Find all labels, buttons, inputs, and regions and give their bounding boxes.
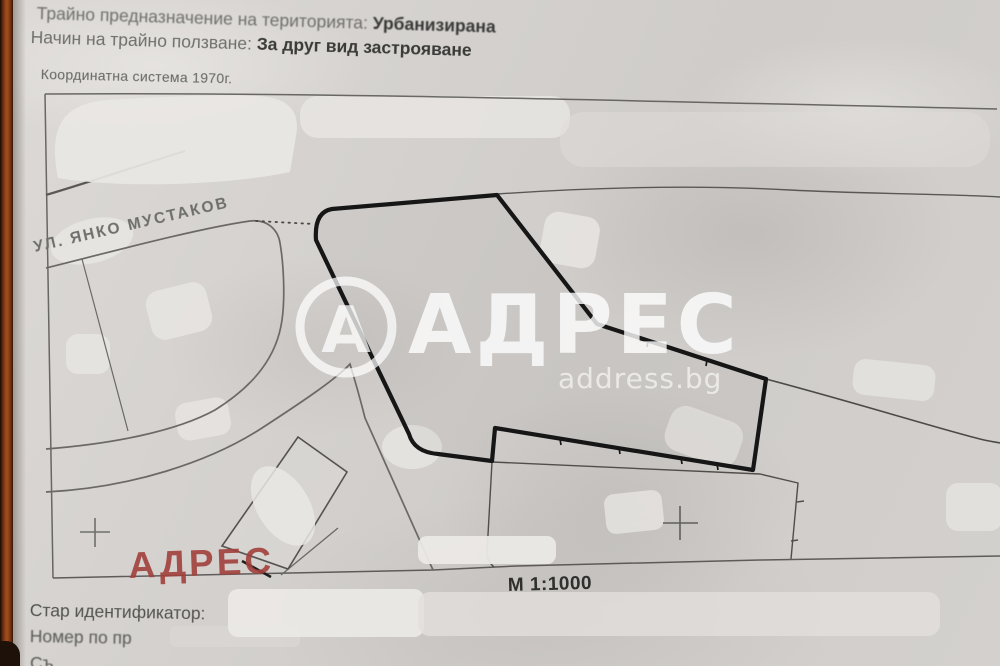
cut-off-text: Съ	[30, 653, 54, 666]
previous-plan-label: Номер по пр	[30, 626, 132, 649]
watermark-domain-text: address.bg	[558, 362, 722, 395]
old-identifier-label: Стар идентификатор:	[30, 600, 206, 624]
survey-cross-right	[663, 506, 698, 540]
footer-redaction-wide	[418, 592, 940, 636]
cadastral-map: УЛ. ЯНКО МУСТАКОВ А АДРЕС address.bg АДР…	[0, 0, 1000, 666]
address-logo-letter: А	[321, 294, 371, 368]
watermark-brand-text: АДРЕС	[408, 278, 741, 373]
survey-cross-left	[80, 518, 110, 547]
red-brand-stamp: АДРЕС	[128, 540, 275, 586]
footer-redaction-bright	[228, 589, 424, 637]
scanned-cadastral-sketch: Трайно предназначение на територията: Ур…	[0, 0, 1000, 666]
